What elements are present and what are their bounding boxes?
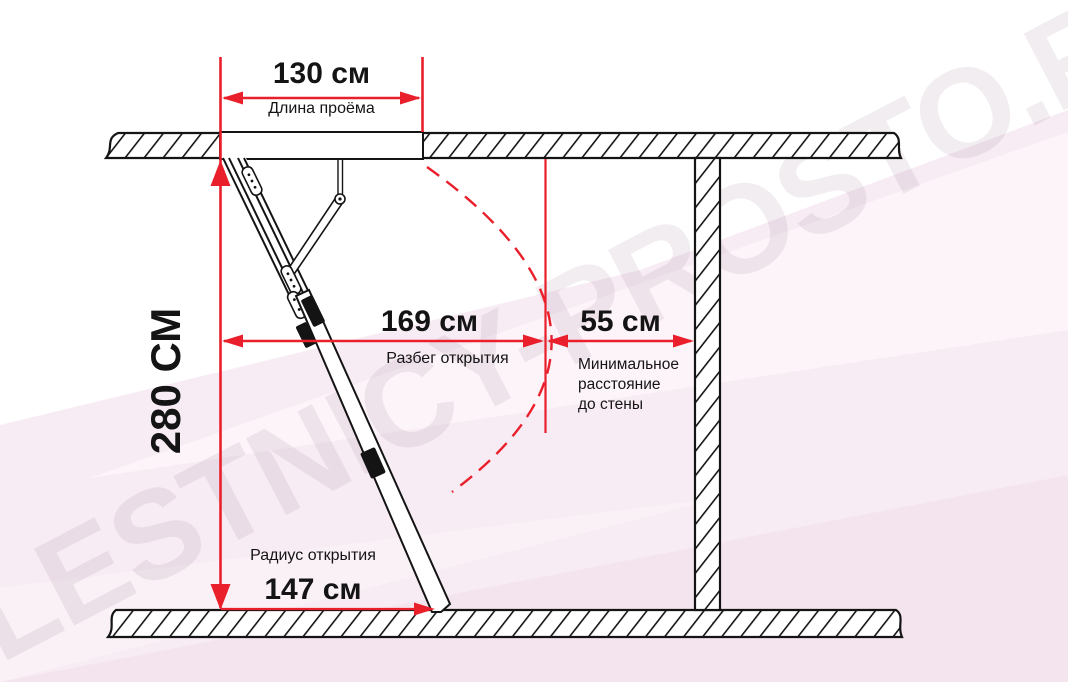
opening-run-label: Разбег открытия — [345, 351, 550, 368]
wall-distance-label-line: расстояние — [578, 375, 679, 395]
wall-column — [695, 158, 720, 610]
opening-radius-label: Радиус открытия — [213, 548, 413, 565]
floor-slab — [108, 610, 902, 637]
ladder-upper-section — [222, 158, 316, 304]
opening-length-value: 130 см — [222, 58, 421, 90]
opening-run-value: 169 см — [337, 306, 522, 338]
wall-distance-label-line: Минимальное — [578, 355, 679, 375]
arrowhead-right — [523, 335, 544, 348]
attic-ladder-dimension-diagram: LESTNICY-PROSTO.RU — [0, 0, 1068, 682]
folding-ladder — [222, 158, 450, 612]
fold-arm — [285, 158, 345, 279]
ceiling-opening-box — [220, 132, 423, 159]
ceiling-height-value: 280 СМ — [144, 281, 188, 481]
opening-radius-value: 147 см — [213, 574, 413, 606]
arrowhead-left — [222, 335, 243, 348]
wall-distance-label: Минимальное расстояние до стены — [578, 355, 679, 415]
wall-distance-value: 55 см — [553, 306, 688, 338]
wall-distance-label-line: до стены — [578, 395, 679, 415]
opening-length-label: Длина проёма — [222, 101, 421, 118]
